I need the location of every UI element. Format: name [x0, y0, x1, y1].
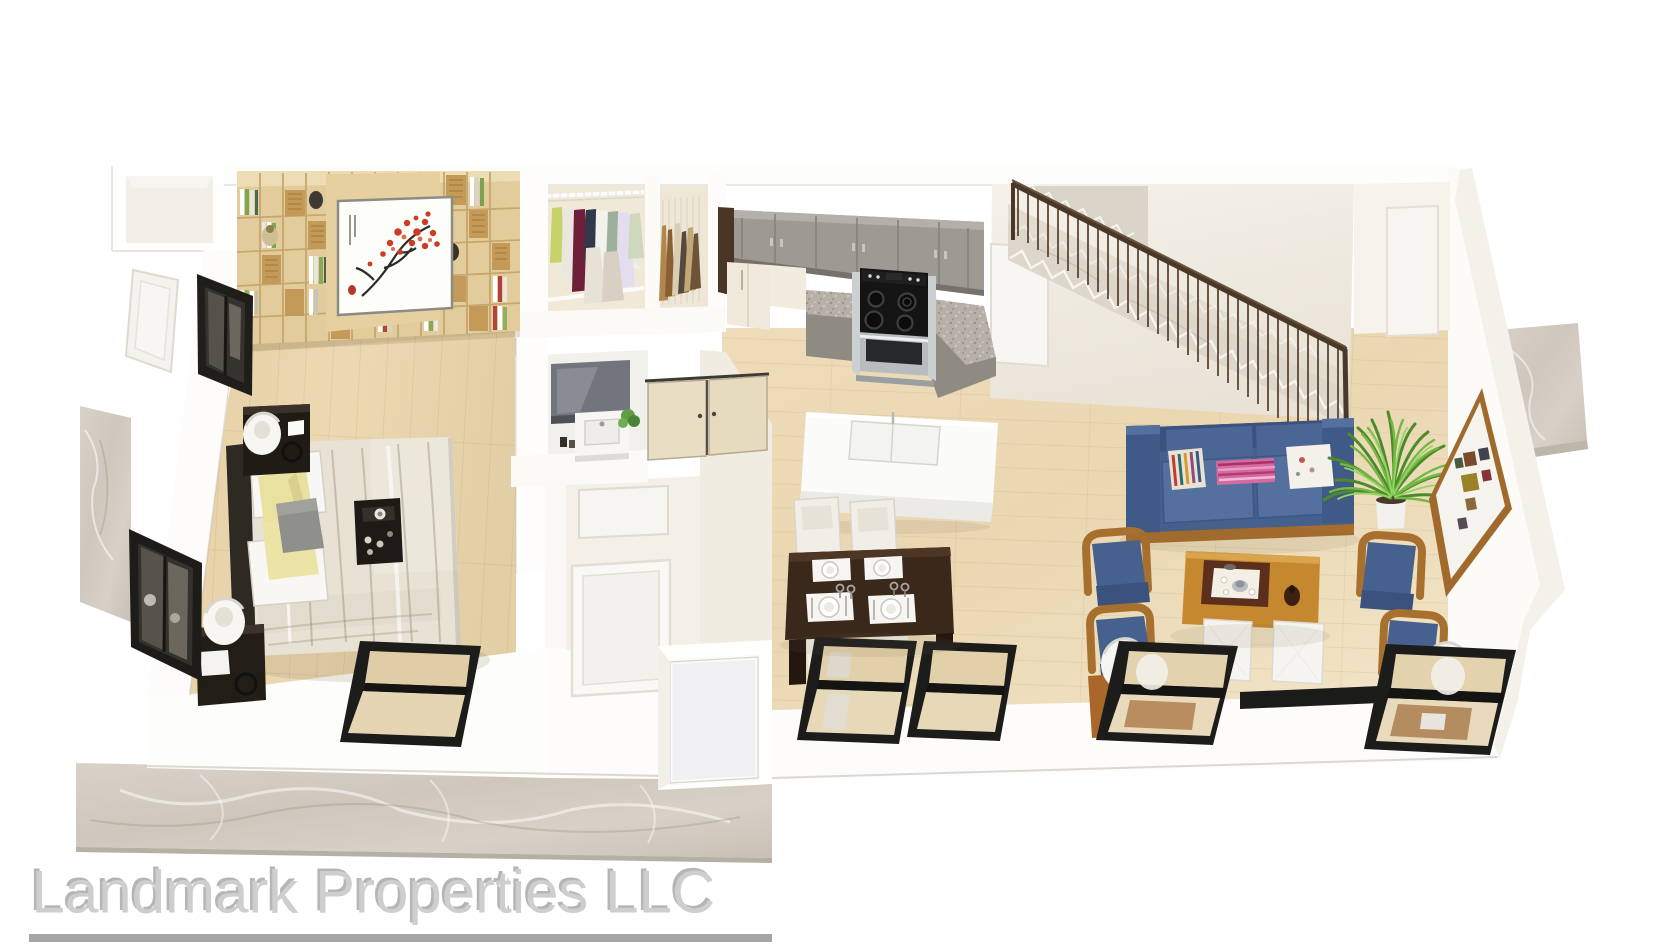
svg-text:Landmark Properties LLC: Landmark Properties LLC [32, 859, 716, 926]
